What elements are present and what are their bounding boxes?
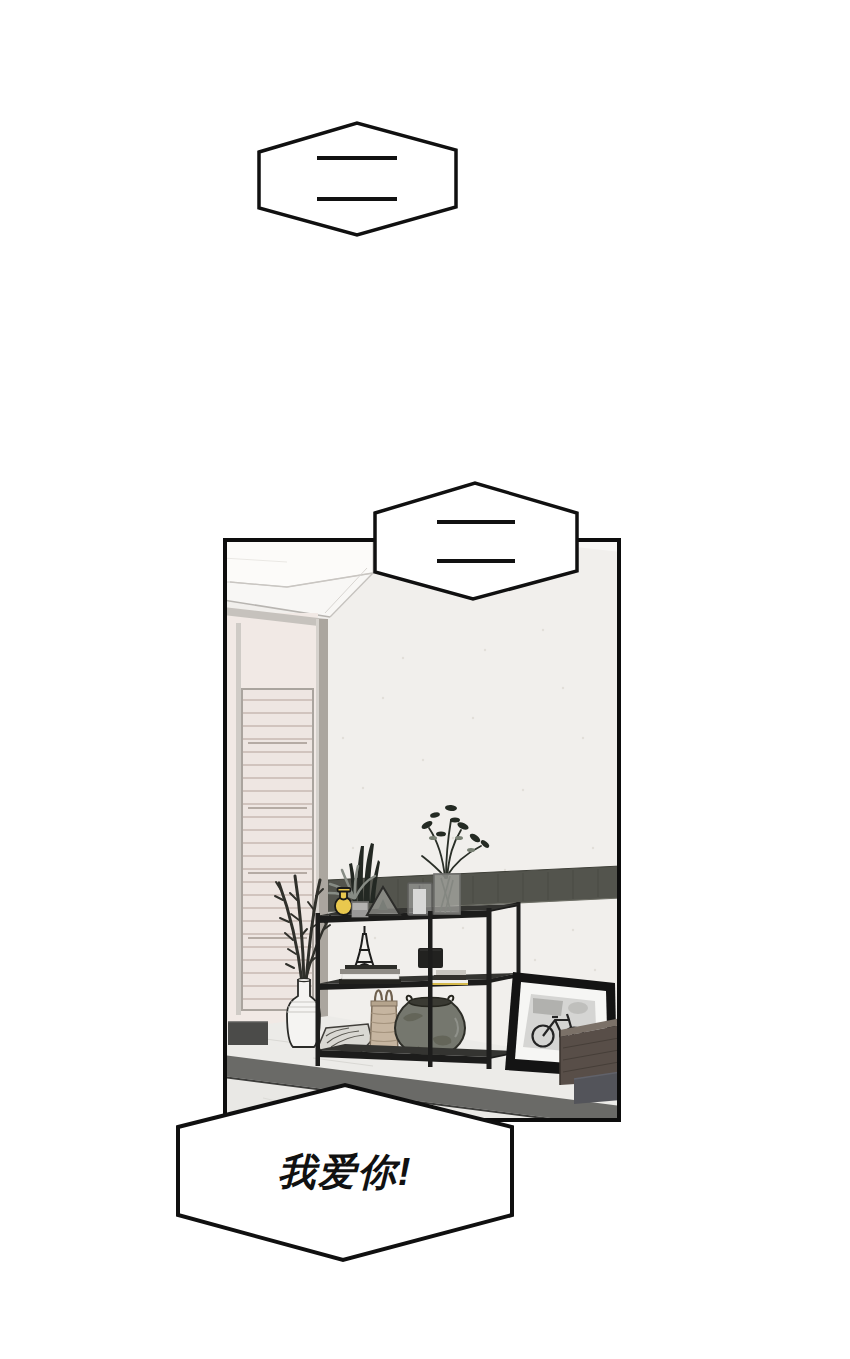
dash-mark xyxy=(437,559,515,563)
door-frame xyxy=(223,607,328,1044)
comic-page: 我爱你! xyxy=(0,0,850,1359)
candle-holder xyxy=(408,883,432,915)
speech-bubble-bottom: 我爱你! xyxy=(174,1081,516,1265)
panel-interior-scene xyxy=(223,538,621,1122)
bubble-outline xyxy=(375,483,577,599)
glass-flower-vase xyxy=(434,874,460,914)
speech-bubble-top xyxy=(255,119,461,240)
bubble-text: 我爱你! xyxy=(278,1151,413,1193)
dash-mark xyxy=(317,156,397,160)
yellow-vase xyxy=(335,888,352,915)
bubble-outline xyxy=(259,123,456,235)
dash-mark xyxy=(437,520,515,524)
dash-mark xyxy=(317,197,397,201)
speech-bubble-middle xyxy=(371,479,582,604)
dark-bench xyxy=(228,1022,268,1045)
book-stack-right xyxy=(432,970,468,985)
book-stack-left xyxy=(339,965,401,984)
